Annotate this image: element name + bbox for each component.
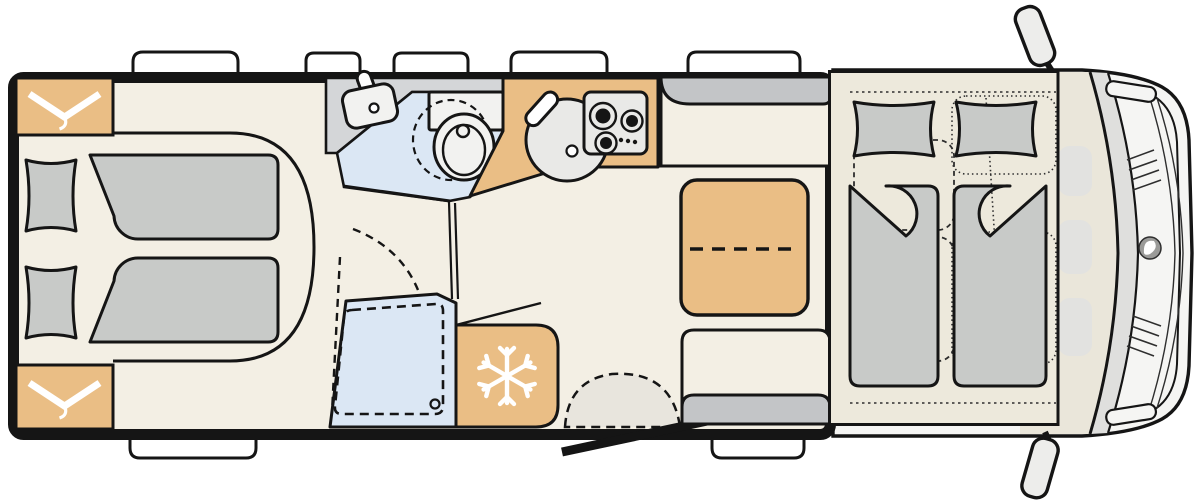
hob-knob-dot	[626, 139, 630, 143]
dropdown-bed	[830, 72, 1059, 425]
shower	[330, 294, 456, 427]
mirror-bottom	[1019, 432, 1061, 500]
wardrobe-cabinet	[16, 365, 113, 429]
basin-drain	[370, 104, 379, 113]
mirror-icon	[1012, 3, 1058, 68]
pillow	[854, 102, 934, 156]
sink-drain	[567, 146, 578, 157]
cab-console	[1058, 220, 1092, 274]
hob-knob-dot	[619, 138, 623, 142]
mirror-icon	[1019, 436, 1061, 501]
pillow	[956, 102, 1036, 156]
toilet-flush	[457, 125, 469, 137]
rear-bench-backrest	[682, 395, 830, 424]
wardrobe-top	[16, 78, 113, 135]
pillow	[26, 160, 76, 231]
cab-console	[1058, 298, 1092, 356]
duvet	[90, 155, 278, 239]
burner-icon	[626, 115, 638, 127]
floorplan	[0, 0, 1200, 503]
floorplan-canvas	[0, 0, 1200, 503]
dinette	[661, 77, 831, 424]
duvet	[90, 258, 278, 342]
burner-icon	[600, 137, 612, 149]
cab-console	[1058, 146, 1092, 196]
mirror-top	[1012, 3, 1058, 71]
wardrobe-bottom	[16, 365, 113, 429]
pillow	[26, 267, 76, 338]
hob-knob-dot	[633, 140, 637, 144]
burner-icon	[596, 109, 611, 124]
brand-logo-icon	[1139, 237, 1161, 259]
hob	[584, 92, 647, 154]
front-bench-backrest	[661, 77, 831, 104]
